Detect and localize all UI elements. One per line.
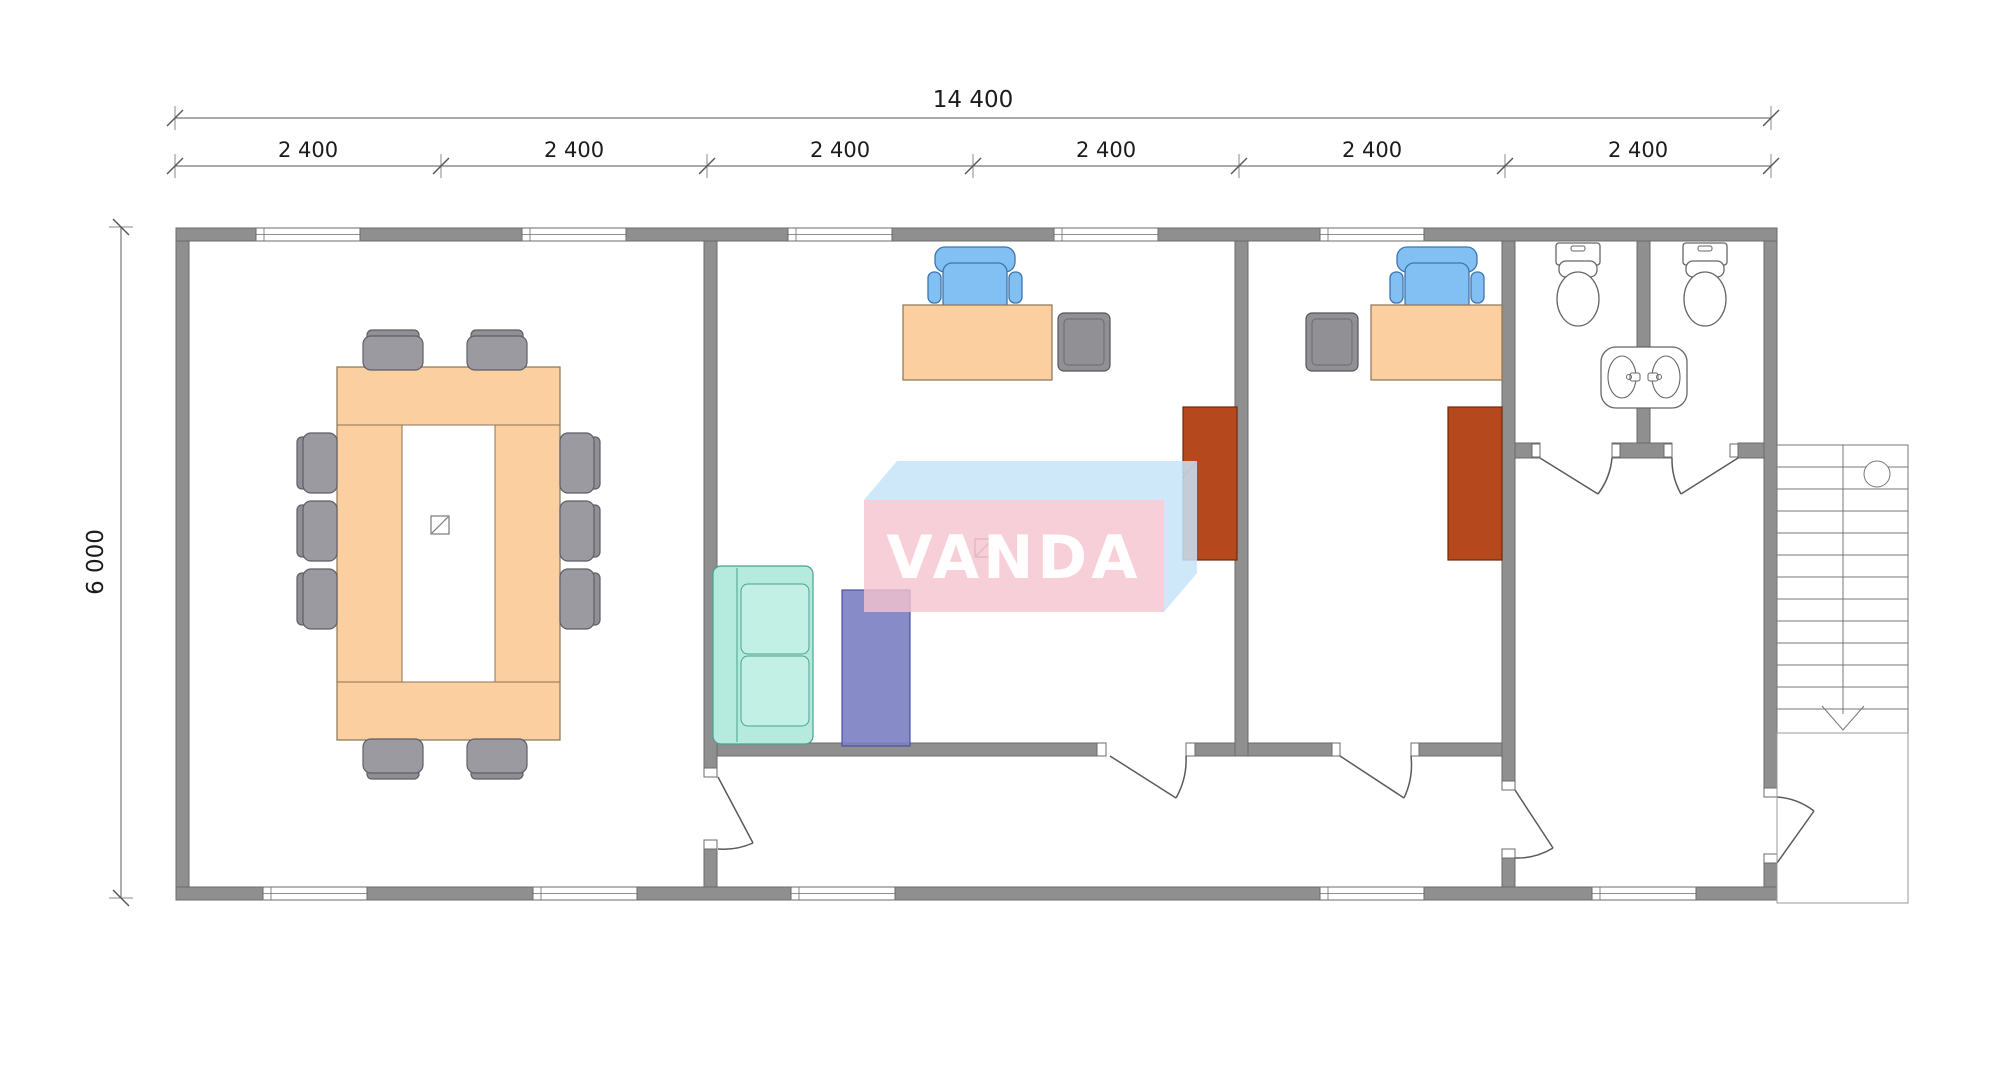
wall-exterior-right-upper — [1764, 241, 1777, 794]
double-sink-icon — [1601, 347, 1687, 408]
chair-icon — [297, 433, 337, 493]
wall-exterior-left — [176, 241, 189, 887]
chair-icon — [560, 433, 600, 493]
door-office-1 — [1110, 756, 1186, 798]
chair-icon — [297, 501, 337, 561]
dimension-label-height: 6 000 — [83, 529, 109, 595]
wall-bathroom-left-upper — [1502, 241, 1515, 790]
dimension-label-bay-6: 2 400 — [1608, 138, 1668, 162]
door-meeting-room — [718, 777, 753, 849]
watermark-top-face — [864, 461, 1197, 500]
wall-exterior-right-lower — [1764, 862, 1777, 887]
dimension-label-total-width: 14 400 — [933, 87, 1013, 113]
stair-column-icon — [1864, 461, 1890, 487]
chair-icon — [297, 569, 337, 629]
dimension-label-bay-2: 2 400 — [544, 138, 604, 162]
conference-table — [337, 367, 560, 740]
dimension-height: 6 000 — [83, 219, 133, 906]
chair-icon — [560, 501, 600, 561]
meeting-room — [297, 330, 600, 779]
office-chair-icon — [1390, 247, 1484, 312]
wall-exterior-bottom — [176, 887, 1777, 900]
dimension-label-bay-5: 2 400 — [1342, 138, 1402, 162]
floor-plan-drawing: 14 400 2 400 2 400 2 400 2 400 2 400 2 4… — [0, 0, 2000, 1076]
tall-cabinet-2 — [1448, 407, 1502, 560]
pedestal-cabinet-2 — [1306, 313, 1358, 371]
door-hall — [1515, 790, 1553, 858]
armchair — [842, 590, 910, 746]
toilet-icon — [1683, 243, 1727, 326]
window-top-3 — [788, 228, 892, 241]
window-top-4 — [1054, 228, 1158, 241]
sofa — [713, 566, 813, 744]
chair-icon — [363, 739, 423, 779]
window-bottom-5 — [1592, 887, 1696, 900]
wall-corridor-segment-3 — [1419, 743, 1502, 756]
door-toilet-2 — [1672, 458, 1738, 494]
dimension-total-width: 14 400 — [167, 87, 1779, 130]
dimension-label-bay-1: 2 400 — [278, 138, 338, 162]
window-top-5 — [1320, 228, 1424, 241]
door-toilet-1 — [1540, 458, 1612, 494]
desk-1 — [903, 305, 1052, 380]
watermark-text: VANDA — [886, 523, 1141, 593]
chair-icon — [363, 330, 423, 370]
window-top-1 — [256, 228, 360, 241]
watermark: VANDA — [864, 461, 1197, 612]
dimension-segments: 2 400 2 400 2 400 2 400 2 400 2 400 — [167, 138, 1779, 178]
pedestal-cabinet-1 — [1058, 313, 1110, 371]
wall-bathroom-front-segment-3 — [1738, 443, 1764, 458]
wall-bathroom-front-segment-2 — [1612, 443, 1672, 458]
wall-exterior-top — [176, 228, 1777, 241]
office-2 — [1306, 247, 1502, 560]
floor-plan-canvas: 14 400 2 400 2 400 2 400 2 400 2 400 2 4… — [0, 0, 2000, 1076]
wall-bathroom-divider — [1637, 241, 1650, 443]
wall-corridor-segment-2 — [1195, 743, 1332, 756]
office-chair-icon — [928, 247, 1022, 312]
window-bottom-3 — [791, 887, 895, 900]
chair-icon — [467, 739, 527, 779]
window-bottom-1 — [263, 887, 367, 900]
chair-icon — [560, 569, 600, 629]
window-top-2 — [522, 228, 626, 241]
entry-porch-outline — [1777, 733, 1908, 903]
toilet-icon — [1556, 243, 1600, 326]
wall-bathroom-left-lower — [1502, 856, 1515, 887]
placement-symbol-icon — [431, 516, 449, 534]
window-bottom-4 — [1320, 887, 1424, 900]
wall-meeting-room-right-lower — [704, 847, 717, 887]
window-bottom-2 — [533, 887, 637, 900]
dimension-label-bay-4: 2 400 — [1076, 138, 1136, 162]
door-office-2 — [1340, 756, 1411, 798]
desk-2 — [1371, 305, 1502, 380]
chair-icon — [467, 330, 527, 370]
dimension-label-bay-3: 2 400 — [810, 138, 870, 162]
door-entrance — [1777, 797, 1814, 863]
